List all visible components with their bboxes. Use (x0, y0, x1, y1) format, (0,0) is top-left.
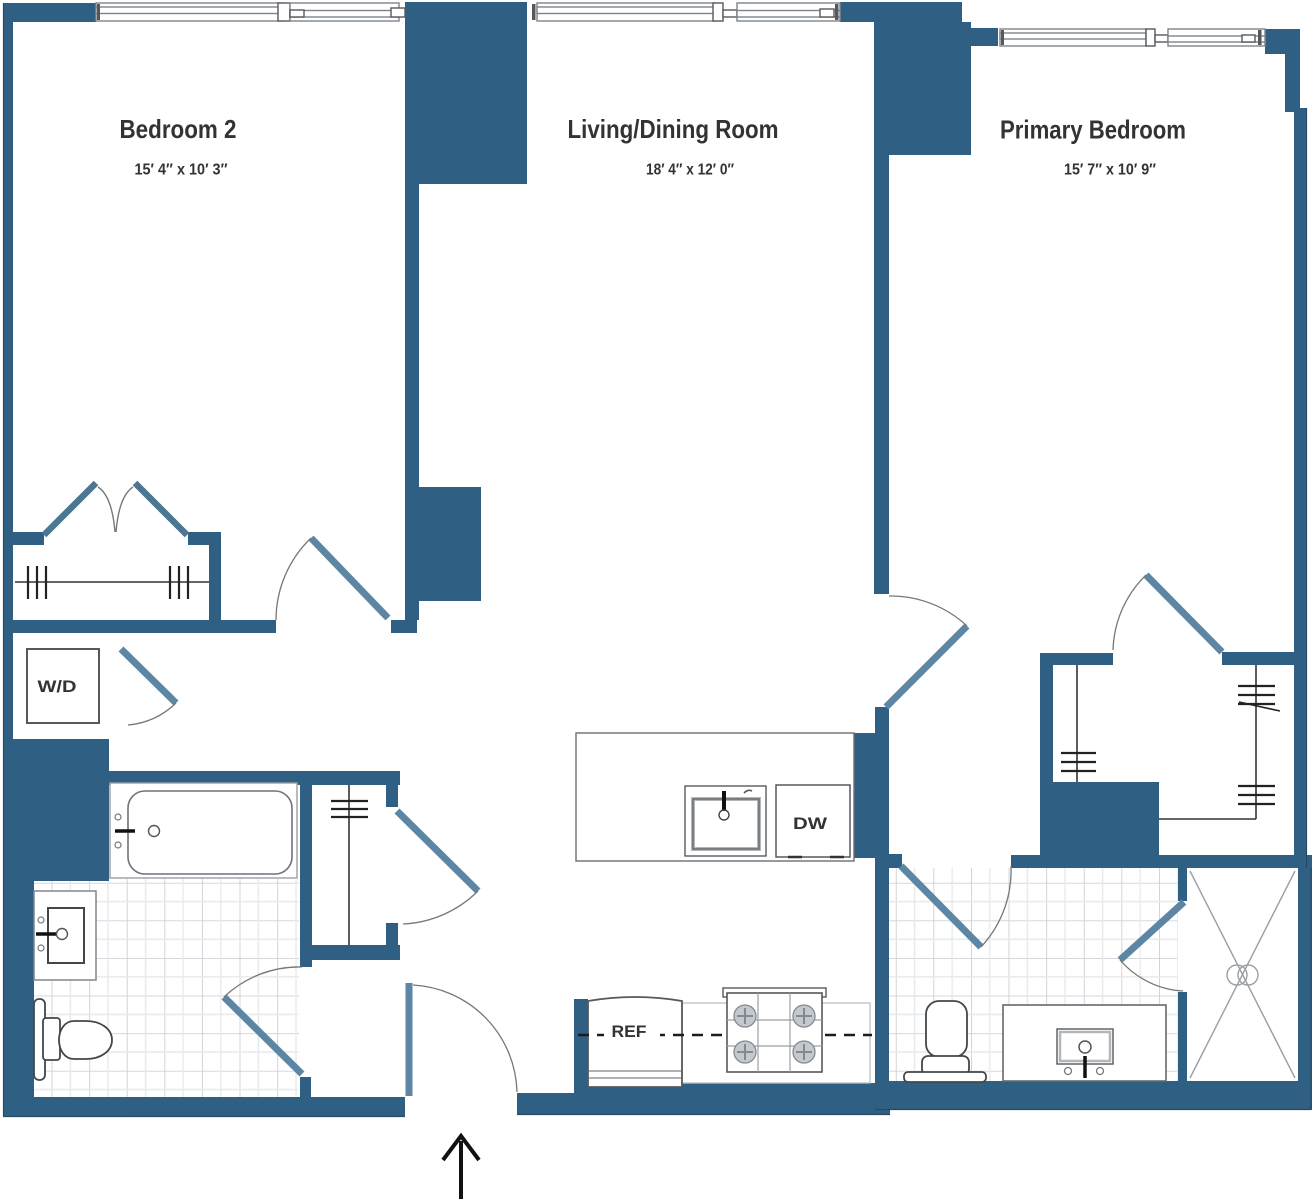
svg-text:Living/Dining Room: Living/Dining Room (568, 114, 779, 144)
svg-text:Bedroom 2: Bedroom 2 (120, 114, 237, 144)
svg-text:DW: DW (793, 814, 828, 833)
svg-text:Primary Bedroom: Primary Bedroom (1000, 115, 1186, 145)
svg-text:15′ 7″ x 10′ 9″: 15′ 7″ x 10′ 9″ (1064, 162, 1156, 179)
svg-text:15′ 4″ x 10′ 3″: 15′ 4″ x 10′ 3″ (135, 162, 228, 179)
svg-text:REF: REF (612, 1022, 647, 1041)
svg-text:W/D: W/D (38, 677, 77, 696)
svg-text:18′ 4″ x 12′ 0″: 18′ 4″ x 12′ 0″ (646, 162, 734, 179)
